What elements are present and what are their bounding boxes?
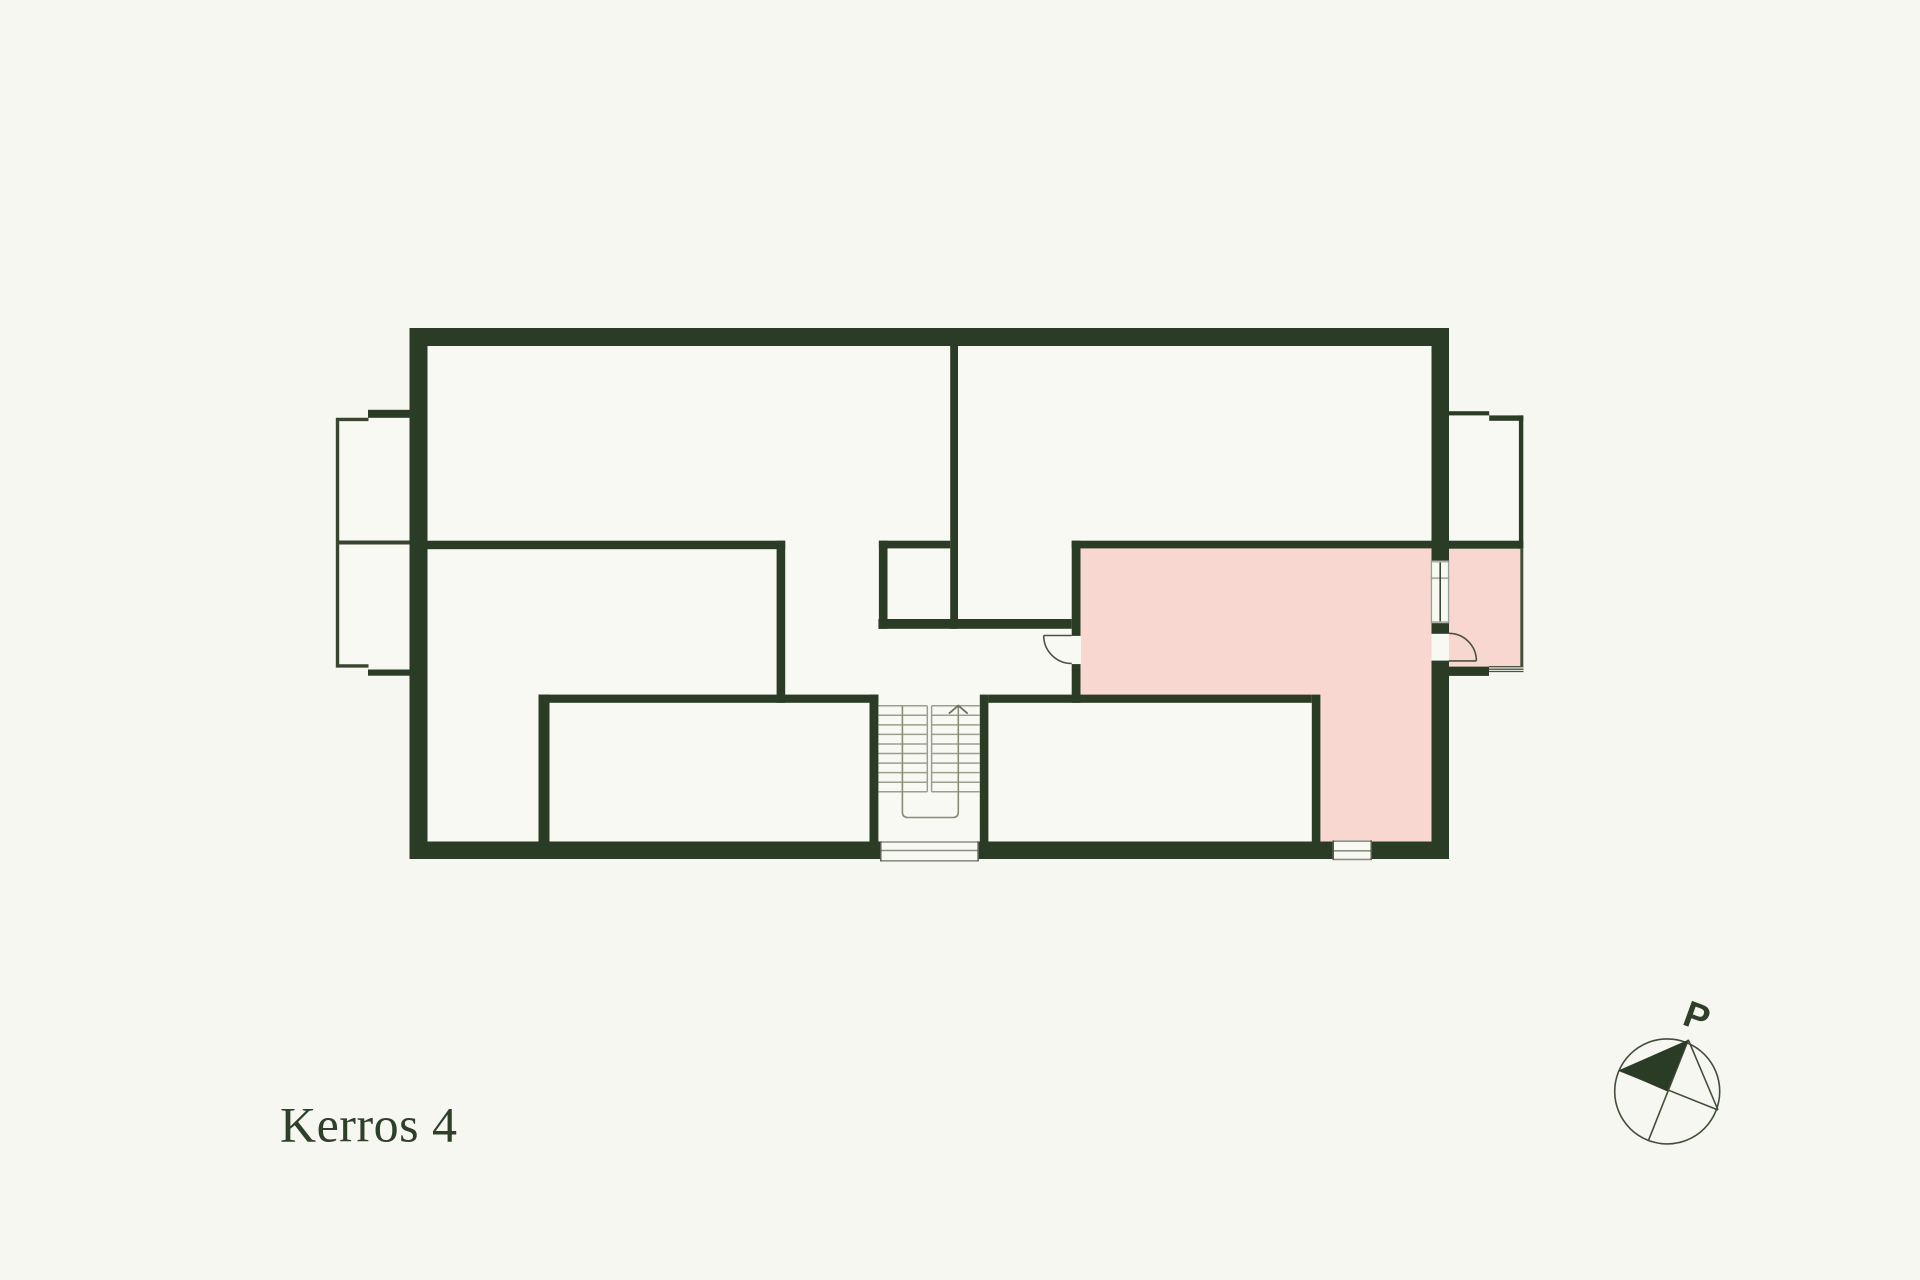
svg-text:Kerros 4: Kerros 4 <box>280 1097 458 1153</box>
